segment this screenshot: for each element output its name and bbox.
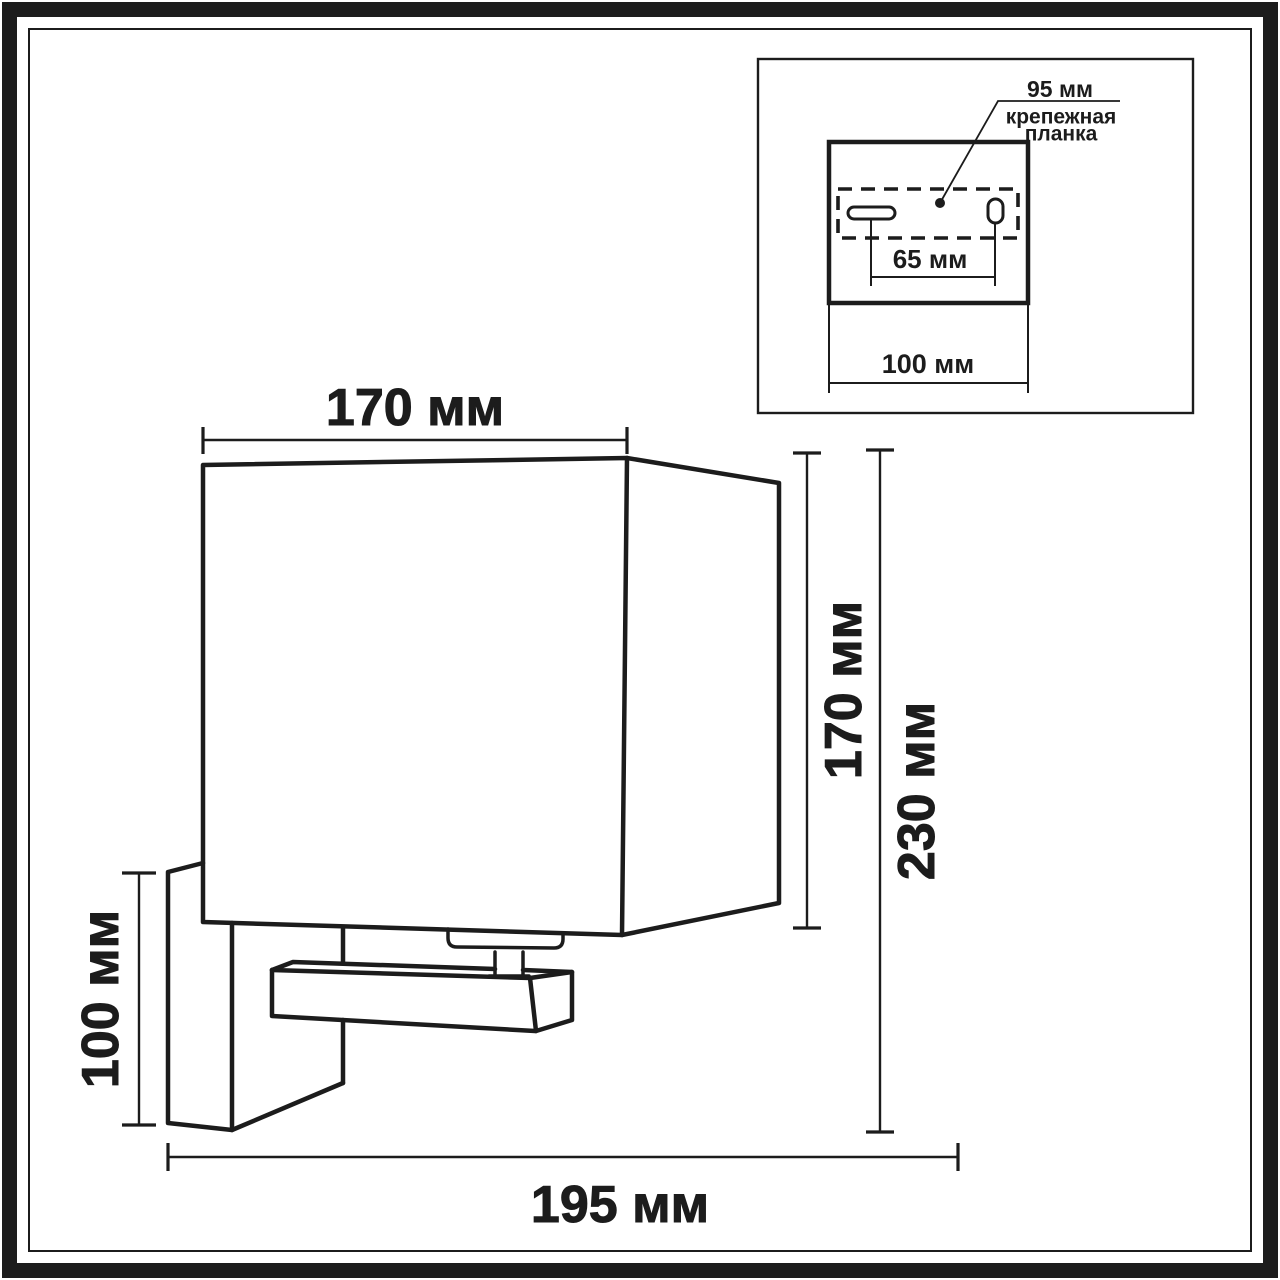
leader-dot — [935, 198, 945, 208]
arm-front-right-edge — [530, 978, 536, 1031]
bracket-arm — [272, 962, 572, 1031]
inset-label-hole-spacing: 65 мм — [893, 244, 968, 274]
inset-label-box-width: 100 мм — [882, 349, 975, 379]
shade-front-face — [203, 458, 627, 935]
mounting-slot — [848, 207, 895, 219]
inset-label-plate-line2: планка — [1025, 123, 1098, 146]
dim-label-total-height: 230 мм — [888, 702, 946, 880]
sconce-line-art — [168, 458, 779, 1130]
dim-total-depth — [168, 1143, 958, 1171]
mounting-hole — [988, 199, 1003, 223]
mounting-detail-inset: 95 мм крепежная планка 65 мм 100 мм — [758, 59, 1193, 413]
wall-plate-outline — [168, 863, 343, 1130]
shade-right-face — [622, 458, 779, 935]
inset-label-plate-width: 95 мм — [1027, 76, 1093, 102]
dim-label-shade-height: 170 мм — [815, 601, 873, 779]
dim-label-backplate-height: 100 мм — [72, 910, 130, 1088]
inset-border — [758, 59, 1193, 413]
technical-drawing-page: 170 мм 170 мм 230 мм 100 мм 195 мм — [0, 0, 1280, 1280]
wall-sconce-dimension-drawing: 170 мм 170 мм 230 мм 100 мм 195 мм — [0, 0, 1280, 1280]
wall-plate — [168, 863, 343, 1130]
dim-label-total-depth: 195 мм — [531, 1176, 709, 1234]
dim-label-shade-width: 170 мм — [326, 379, 504, 437]
stem — [495, 952, 523, 975]
lampshade-cube — [203, 458, 779, 935]
